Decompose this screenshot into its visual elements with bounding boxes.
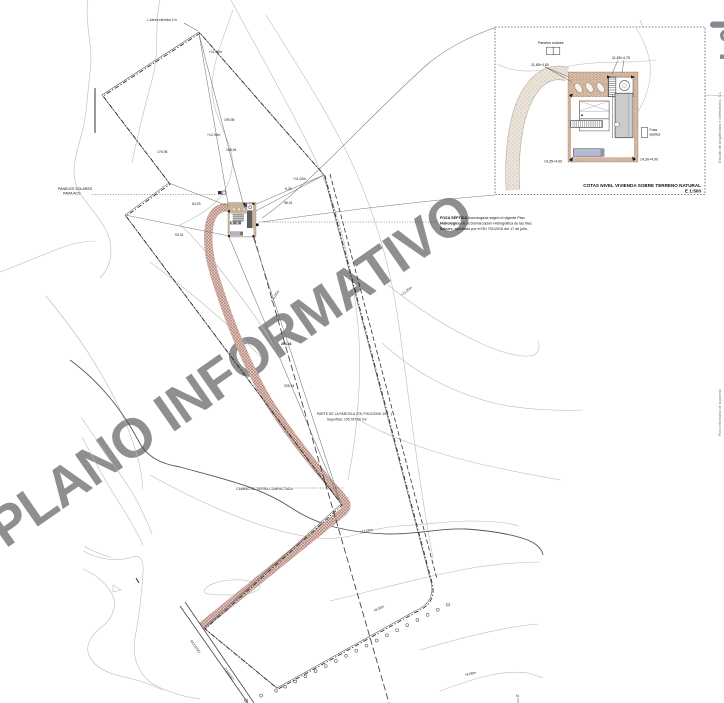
svg-text:199,98: 199,98 (224, 118, 234, 122)
svg-text:98,01: 98,01 (284, 201, 293, 205)
svg-text:L.Aérea eléctrica 2 m: L.Aérea eléctrica 2 m (147, 18, 177, 22)
svg-text:Paneles solares: Paneles solares (538, 41, 564, 45)
svg-text:N: N (516, 693, 519, 698)
svg-text:176,98: 176,98 (157, 150, 167, 154)
svg-text:PARA ACS: PARA ACS (63, 192, 81, 196)
svg-text:FOSA SÉPTICA homologada según: FOSA SÉPTICA homologada según el vigente… (440, 215, 525, 220)
svg-text:93,31: 93,31 (175, 233, 184, 237)
svg-text:+11,00m: +11,00m (293, 177, 306, 181)
svg-text:PARTE DE LA PARCELA 278, POLÍG: PARTE DE LA PARCELA 278, POLÍGONO 19 (..… (317, 412, 392, 416)
svg-text:294,44: 294,44 (281, 342, 291, 346)
svg-text:Fosa: Fosa (650, 128, 658, 132)
svg-text:PANELES SOLARES: PANELES SOLARES (58, 187, 93, 191)
svg-text:CAMINO DE TIERRA COMPACTADA: CAMINO DE TIERRA COMPACTADA (236, 487, 293, 491)
svg-text:Balears, aprobado por el RD 70: Balears, aprobado por el RD 701/2015 del… (440, 227, 528, 231)
svg-text:14,30+4,00: 14,30+4,00 (640, 158, 658, 162)
svg-text:Estudio de Arquitectura e Inte: Estudio de Arquitectura e Interiorismo, … (718, 91, 722, 163)
svg-text:Plano informativo de la parcel: Plano informativo de la parcela (718, 389, 722, 436)
svg-text:11,65+4,75: 11,65+4,75 (612, 56, 630, 60)
svg-text:COTAS NIVEL VIVIENDA SOBRE TER: COTAS NIVEL VIVIENDA SOBRE TERRENO NATUR… (583, 183, 701, 188)
svg-text:+11,00m: +11,00m (209, 50, 222, 54)
svg-text:14,35+4,00: 14,35+4,00 (544, 160, 562, 164)
svg-text:+12,00m: +12,00m (207, 133, 220, 137)
svg-text:64,93: 64,93 (192, 202, 201, 206)
svg-text:205,94: 205,94 (284, 384, 294, 388)
svg-text:séptica: séptica (650, 132, 661, 136)
svg-text:8,30: 8,30 (285, 187, 292, 191)
svg-text:Superficie: 105.787,00 m2: Superficie: 105.787,00 m2 (327, 418, 367, 422)
svg-text:E 1:500: E 1:500 (685, 189, 702, 194)
svg-text:Hidrológico de la Demarcación: Hidrológico de la Demarcación Hidrográfi… (440, 222, 532, 226)
svg-text:188,94: 188,94 (226, 148, 236, 152)
svg-text:11,85+4,80: 11,85+4,80 (531, 63, 549, 67)
